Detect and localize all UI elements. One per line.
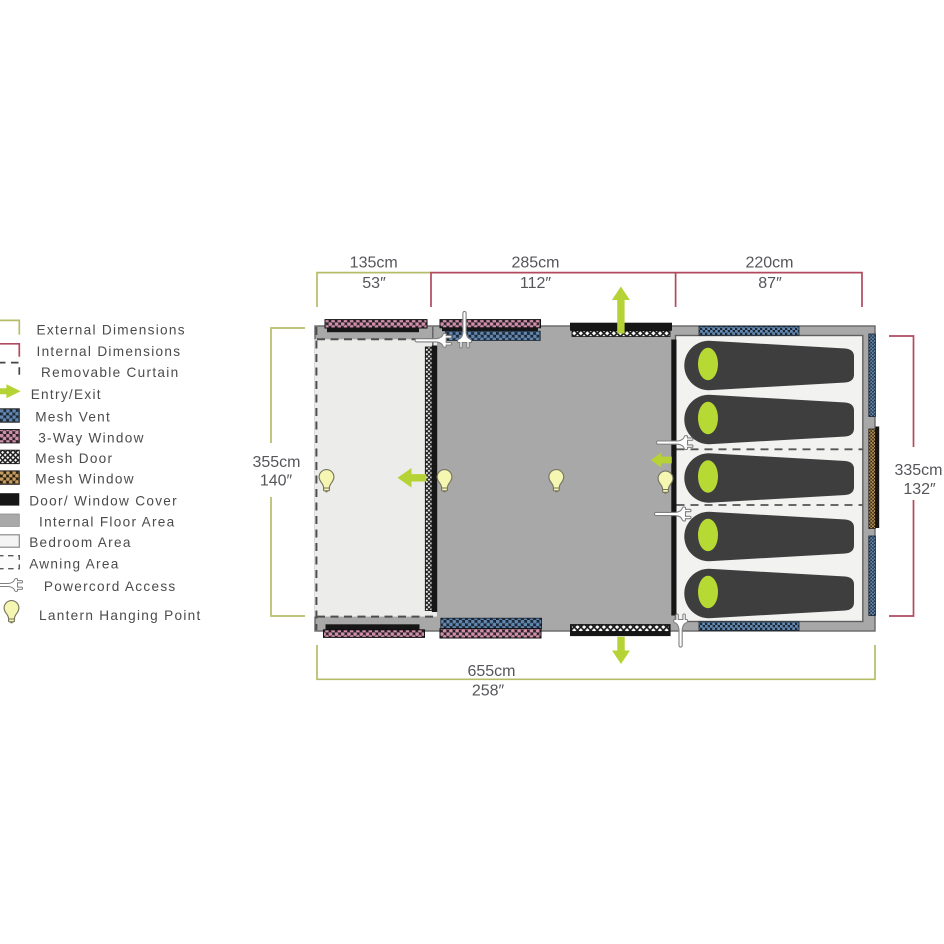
svg-text:335cm: 335cm	[894, 462, 942, 479]
svg-text:Lantern Hanging Point: Lantern Hanging Point	[39, 608, 202, 623]
svg-text:Internal Floor Area: Internal Floor Area	[39, 514, 176, 529]
svg-text:132″: 132″	[903, 481, 936, 498]
svg-text:112″: 112″	[520, 275, 552, 292]
svg-text:Mesh Vent: Mesh Vent	[35, 410, 111, 425]
svg-text:258″: 258″	[472, 682, 505, 699]
svg-text:285cm: 285cm	[511, 255, 559, 272]
svg-text:655cm: 655cm	[467, 663, 515, 680]
svg-text:3-Way Window: 3-Way Window	[38, 430, 145, 445]
svg-text:Entry/Exit: Entry/Exit	[31, 387, 102, 402]
svg-text:Mesh Window: Mesh Window	[35, 472, 135, 487]
svg-text:Bedroom Area: Bedroom Area	[29, 535, 132, 550]
svg-text:External Dimensions: External Dimensions	[37, 322, 186, 337]
svg-text:Powercord Access: Powercord Access	[44, 579, 177, 594]
svg-text:220cm: 220cm	[745, 255, 793, 272]
svg-text:Mesh Door: Mesh Door	[35, 451, 113, 466]
svg-text:Awning Area: Awning Area	[29, 556, 119, 571]
svg-text:Door/ Window Cover: Door/ Window Cover	[29, 494, 178, 509]
svg-text:53″: 53″	[362, 275, 386, 292]
svg-text:Internal Dimensions: Internal Dimensions	[37, 344, 182, 359]
svg-text:Removable Curtain: Removable Curtain	[41, 365, 179, 380]
svg-text:135cm: 135cm	[350, 255, 398, 272]
svg-text:355cm: 355cm	[252, 454, 300, 471]
svg-text:87″: 87″	[758, 275, 782, 292]
svg-text:140″: 140″	[260, 473, 293, 490]
